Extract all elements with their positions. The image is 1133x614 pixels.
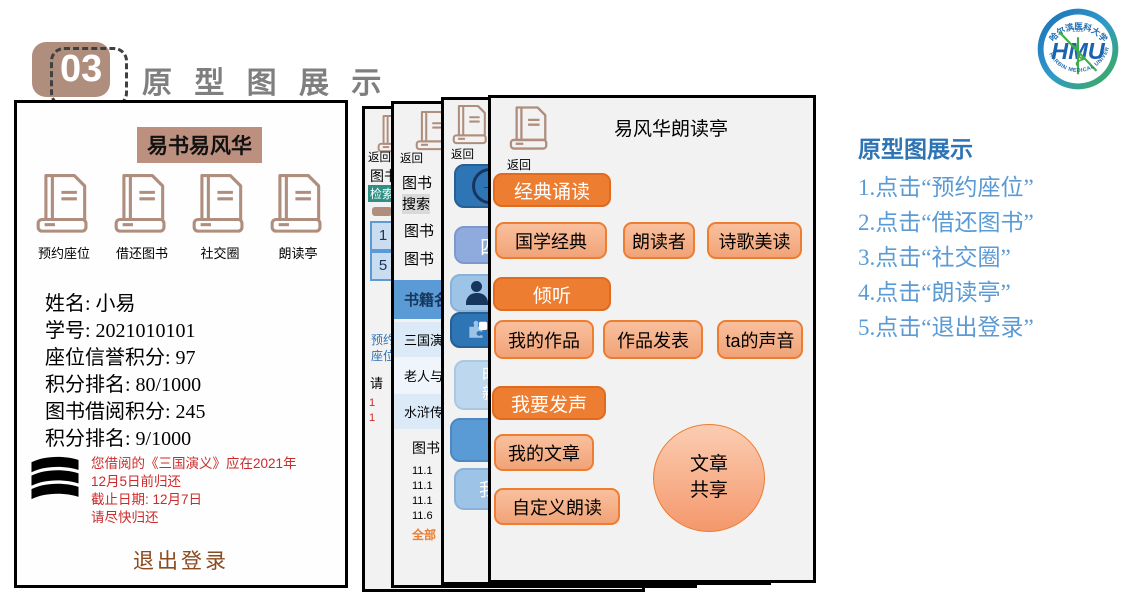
instruction-step: 4.点击“朗读亭” (858, 275, 1130, 310)
search-label[interactable]: 搜索 (402, 194, 430, 214)
slide: 03 原 型 图 展 示 哈尔滨医科大学 1926 HMU (0, 0, 1133, 614)
instruction-step: 5.点击“退出登录” (858, 310, 1130, 345)
i-want-to-speak-button[interactable]: 我要发声 (492, 386, 606, 420)
profile-name: 姓名: 小易 (45, 291, 206, 318)
instruction-step: 2.点击“借还图书” (858, 205, 1130, 240)
puzzle-icon (467, 319, 489, 341)
instruction-step: 3.点击“社交圈” (858, 240, 1130, 275)
section-number: 03 (60, 48, 102, 91)
back-button[interactable]: 返回 (368, 149, 391, 165)
back-button[interactable]: 返回 (507, 156, 531, 173)
date-item: 11.1 (412, 494, 433, 509)
classic-recitation-button[interactable]: 经典诵读 (493, 173, 611, 207)
person-icon (466, 281, 488, 305)
bookstack-icon (27, 455, 83, 503)
hmu-logo: 哈尔滨医科大学 1926 HMU HARBIN MEDICAL UNIVERSI… (1036, 6, 1120, 97)
decor-chip (372, 207, 392, 216)
text-fragment: 1 (369, 412, 375, 424)
return-notice: 您借阅的《三国演义》应在2021年 12月5日前归还 截止日期: 12月7日 请… (27, 455, 297, 527)
menu-item-social-circle[interactable]: 社交圈 (184, 173, 256, 262)
menu-label: 朗读亭 (278, 243, 317, 262)
book-icon (452, 104, 490, 146)
notice-line: 12月5日前归还 (91, 473, 297, 491)
home-menu: 预约座位 借还图书 社交圈 朗读亭 (17, 173, 345, 262)
ta-voice-button[interactable]: ta的声音 (717, 320, 803, 359)
article-share-button[interactable]: 文章 共享 (653, 424, 765, 532)
menu-label: 预约座位 (38, 243, 90, 262)
share-circle-label: 文章 (690, 452, 728, 478)
notice-line: 请尽快归还 (91, 509, 297, 527)
date-item: 11.6 (412, 509, 433, 524)
back-button[interactable]: 返回 (451, 146, 474, 162)
text-fragment: 图书 (412, 438, 440, 458)
home-screen: 易书易风华 预约座位 借还图书 社交圈 朗读亭 姓名: 小易 学号: 20210… (14, 100, 348, 588)
profile-seat-rank: 积分排名: 80/1000 (45, 372, 206, 399)
book-icon (35, 173, 93, 235)
text-fragment: 1 (369, 397, 375, 409)
show-all-link[interactable]: 全部 (412, 526, 436, 543)
my-works-button[interactable]: 我的作品 (494, 320, 594, 359)
menu-item-reserve-seat[interactable]: 预约座位 (28, 173, 100, 262)
poetry-reading-button[interactable]: 诗歌美读 (707, 222, 802, 259)
custom-reading-button[interactable]: 自定义朗读 (494, 488, 620, 525)
instructions-title: 原型图展示 (858, 130, 1130, 164)
guoxue-classics-button[interactable]: 国学经典 (495, 222, 607, 259)
listen-button[interactable]: 倾听 (493, 277, 611, 311)
notice-line: 您借阅的《三国演义》应在2021年 (91, 455, 297, 473)
book-icon (113, 173, 171, 235)
profile-info: 姓名: 小易 学号: 2021010101 座位信誉积分: 97 积分排名: 8… (45, 291, 206, 453)
back-button[interactable]: 返回 (400, 150, 423, 166)
my-articles-button[interactable]: 我的文章 (494, 434, 594, 471)
profile-borrow-rank: 积分排名: 9/1000 (45, 426, 206, 453)
date-list: 11.1 11.1 11.1 11.6 (412, 464, 433, 524)
menu-item-borrow-return[interactable]: 借还图书 (106, 173, 178, 262)
menu-label: 借还图书 (116, 243, 168, 262)
book-icon (509, 105, 551, 152)
profile-seat-credit: 座位信誉积分: 97 (45, 345, 206, 372)
instructions-block: 原型图展示 1.点击“预约座位” 2.点击“借还图书” 3.点击“社交圈” 4.… (858, 130, 1130, 345)
book-icon (269, 173, 327, 235)
text-fragment: 请 (370, 373, 383, 392)
reading-pavilion-screen: 返回 易风华朗读亭 经典诵读 国学经典 朗读者 诗歌美读 倾听 我的作品 作品发… (488, 95, 816, 583)
text-fragment: 图书 (404, 248, 434, 269)
logout-button[interactable]: 退出登录 (17, 545, 345, 575)
share-circle-label: 共享 (690, 478, 728, 504)
notice-line: 截止日期: 12月7日 (91, 491, 297, 509)
instruction-step: 1.点击“预约座位” (858, 170, 1130, 205)
app-title: 易书易风华 (137, 127, 262, 163)
screen-title: 易风华朗读亭 (561, 114, 781, 141)
text-fragment: 图书 (404, 220, 434, 241)
text-fragment: 图书 (402, 172, 432, 193)
date-item: 11.1 (412, 464, 433, 479)
profile-borrow-credit: 图书借阅积分: 245 (45, 399, 206, 426)
date-item: 11.1 (412, 479, 433, 494)
book-icon (191, 173, 249, 235)
publish-works-button[interactable]: 作品发表 (603, 320, 703, 359)
logo-year: 1926 (1072, 28, 1083, 34)
page-title: 原 型 图 展 示 (142, 58, 388, 102)
reader-button[interactable]: 朗读者 (623, 222, 695, 259)
menu-label: 社交圈 (200, 243, 239, 262)
profile-student-id: 学号: 2021010101 (45, 318, 206, 345)
menu-item-reading-pavilion[interactable]: 朗读亭 (262, 173, 334, 262)
